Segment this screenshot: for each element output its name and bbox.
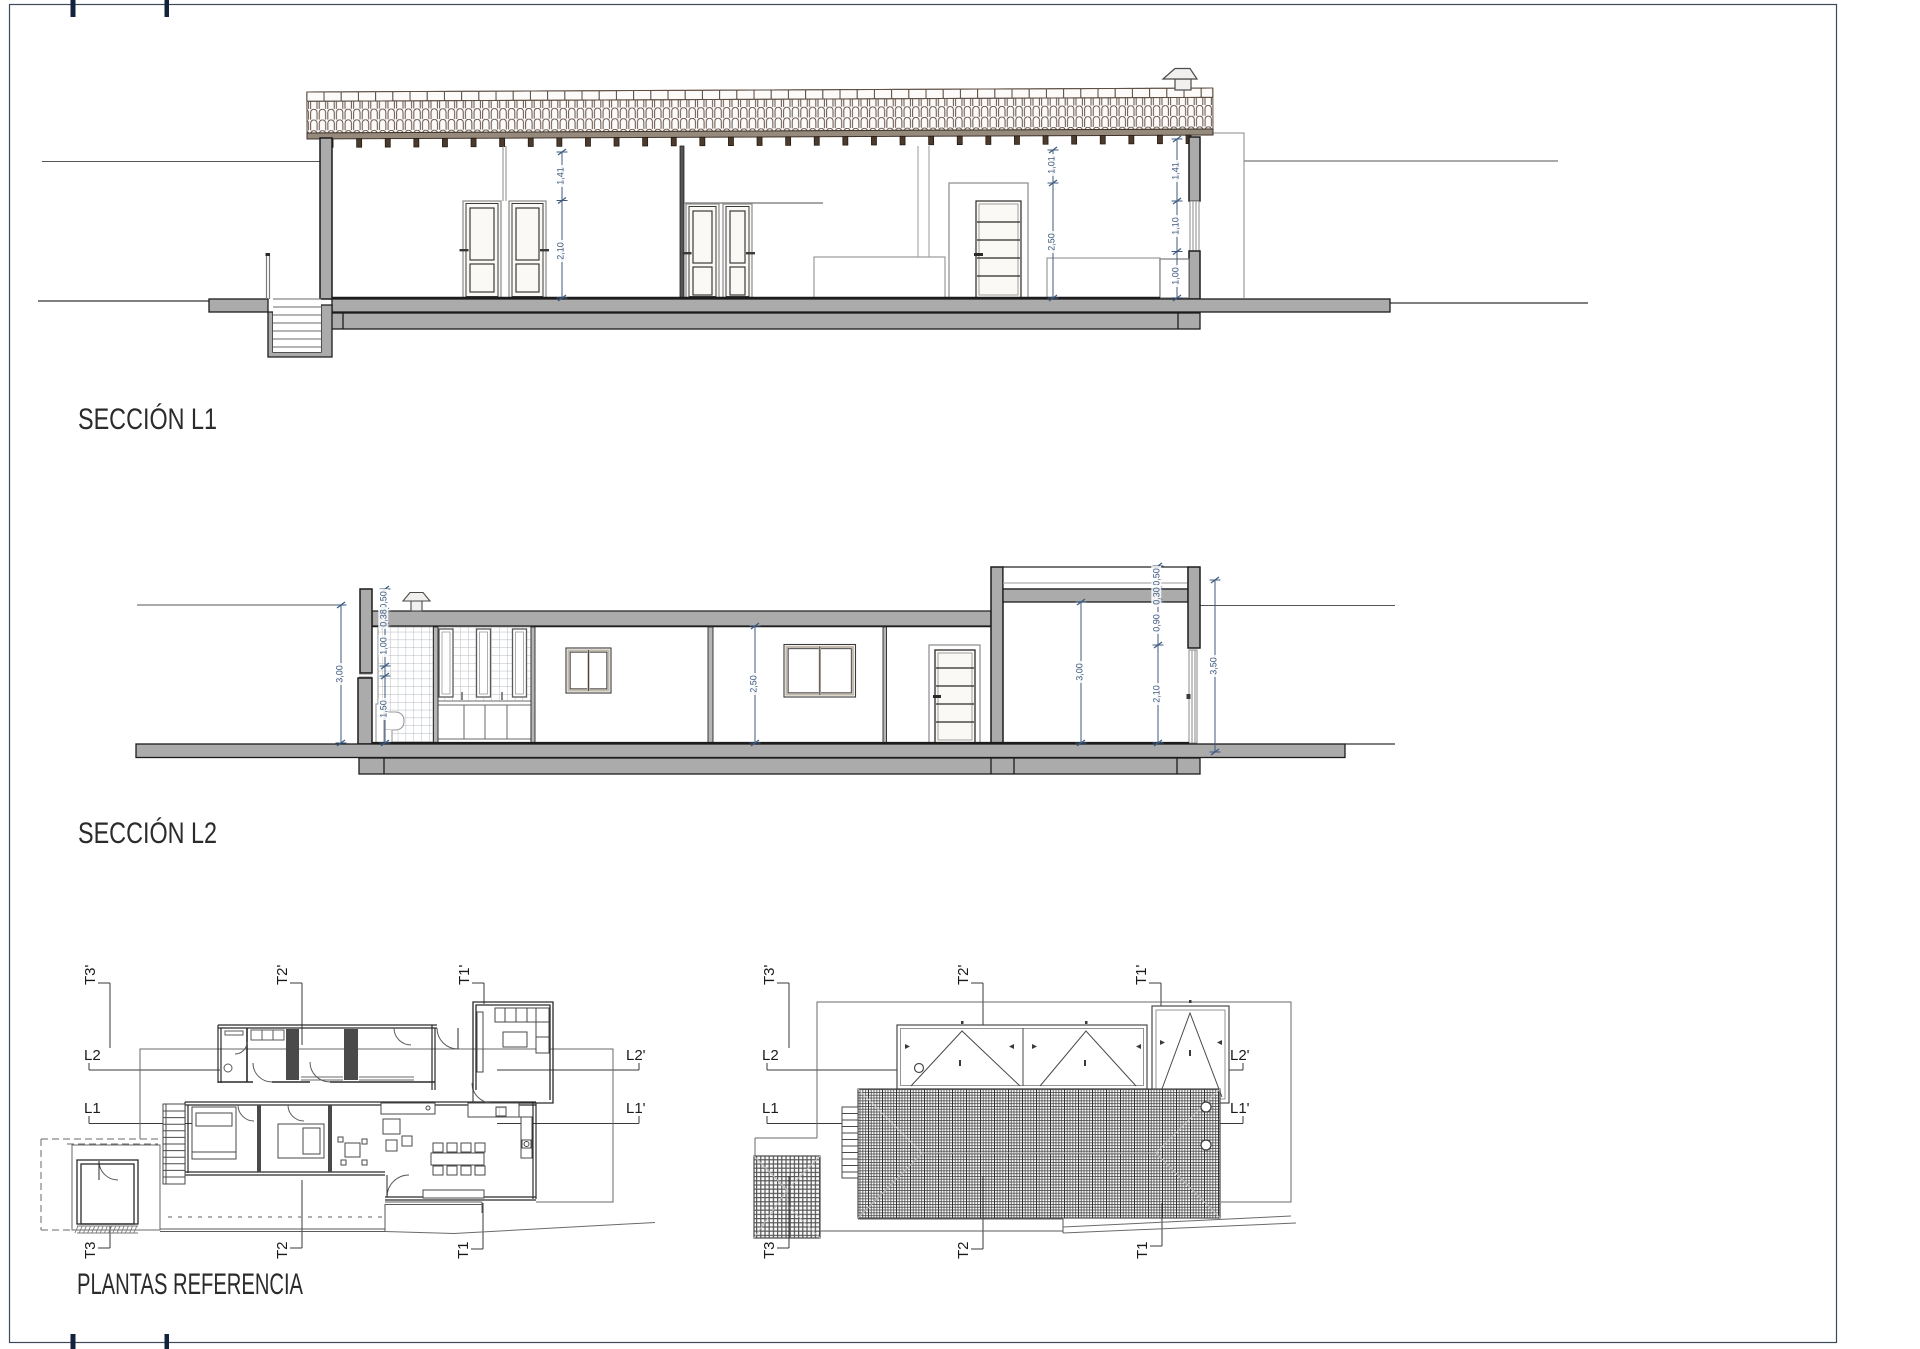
svg-text:T2: T2 [274,1241,291,1259]
svg-text:L2: L2 [762,1047,779,1064]
svg-text:T1: T1 [1134,1241,1151,1259]
svg-text:0,90: 0,90 [1152,614,1162,632]
svg-text:L2: L2 [84,1047,101,1064]
svg-text:T3: T3 [82,1241,99,1259]
svg-text:L2': L2' [626,1047,646,1064]
svg-text:0,50: 0,50 [1152,568,1162,586]
svg-text:0,38: 0,38 [379,609,389,627]
svg-text:T2': T2' [955,964,972,985]
svg-text:2,50: 2,50 [749,675,759,693]
svg-text:L1': L1' [1230,1100,1250,1117]
svg-text:L1: L1 [84,1100,101,1117]
svg-text:L1: L1 [762,1100,779,1117]
svg-text:T3: T3 [761,1241,778,1259]
svg-text:1,41: 1,41 [1171,162,1181,180]
svg-text:SECCIÓN L1: SECCIÓN L1 [78,403,217,436]
svg-text:0,50: 0,50 [379,591,389,609]
svg-text:2,10: 2,10 [1152,685,1162,703]
svg-text:1,10: 1,10 [1171,217,1181,235]
svg-text:0,30: 0,30 [1152,587,1162,605]
svg-text:T1: T1 [455,1241,472,1259]
svg-text:3,50: 3,50 [1209,657,1219,675]
svg-text:T3': T3' [761,964,778,985]
svg-text:SECCIÓN L2: SECCIÓN L2 [78,817,217,850]
svg-text:L1': L1' [626,1100,646,1117]
svg-text:1,50: 1,50 [379,700,389,718]
svg-text:2,10: 2,10 [556,242,566,260]
svg-text:PLANTAS REFERENCIA: PLANTAS REFERENCIA [77,1268,303,1301]
svg-text:3,00: 3,00 [1075,663,1085,681]
svg-text:1,00: 1,00 [379,637,389,655]
svg-text:T2: T2 [955,1241,972,1259]
svg-text:T1': T1' [1133,964,1150,985]
svg-text:T2': T2' [274,964,291,985]
svg-text:2,50: 2,50 [1047,233,1057,251]
svg-text:3,00: 3,00 [335,665,345,683]
svg-text:1,41: 1,41 [556,167,566,185]
svg-text:L2': L2' [1230,1047,1250,1064]
svg-text:T3': T3' [82,964,99,985]
svg-text:1,00: 1,00 [1171,267,1181,285]
svg-text:T1': T1' [456,964,473,985]
svg-text:1,01: 1,01 [1047,156,1057,174]
